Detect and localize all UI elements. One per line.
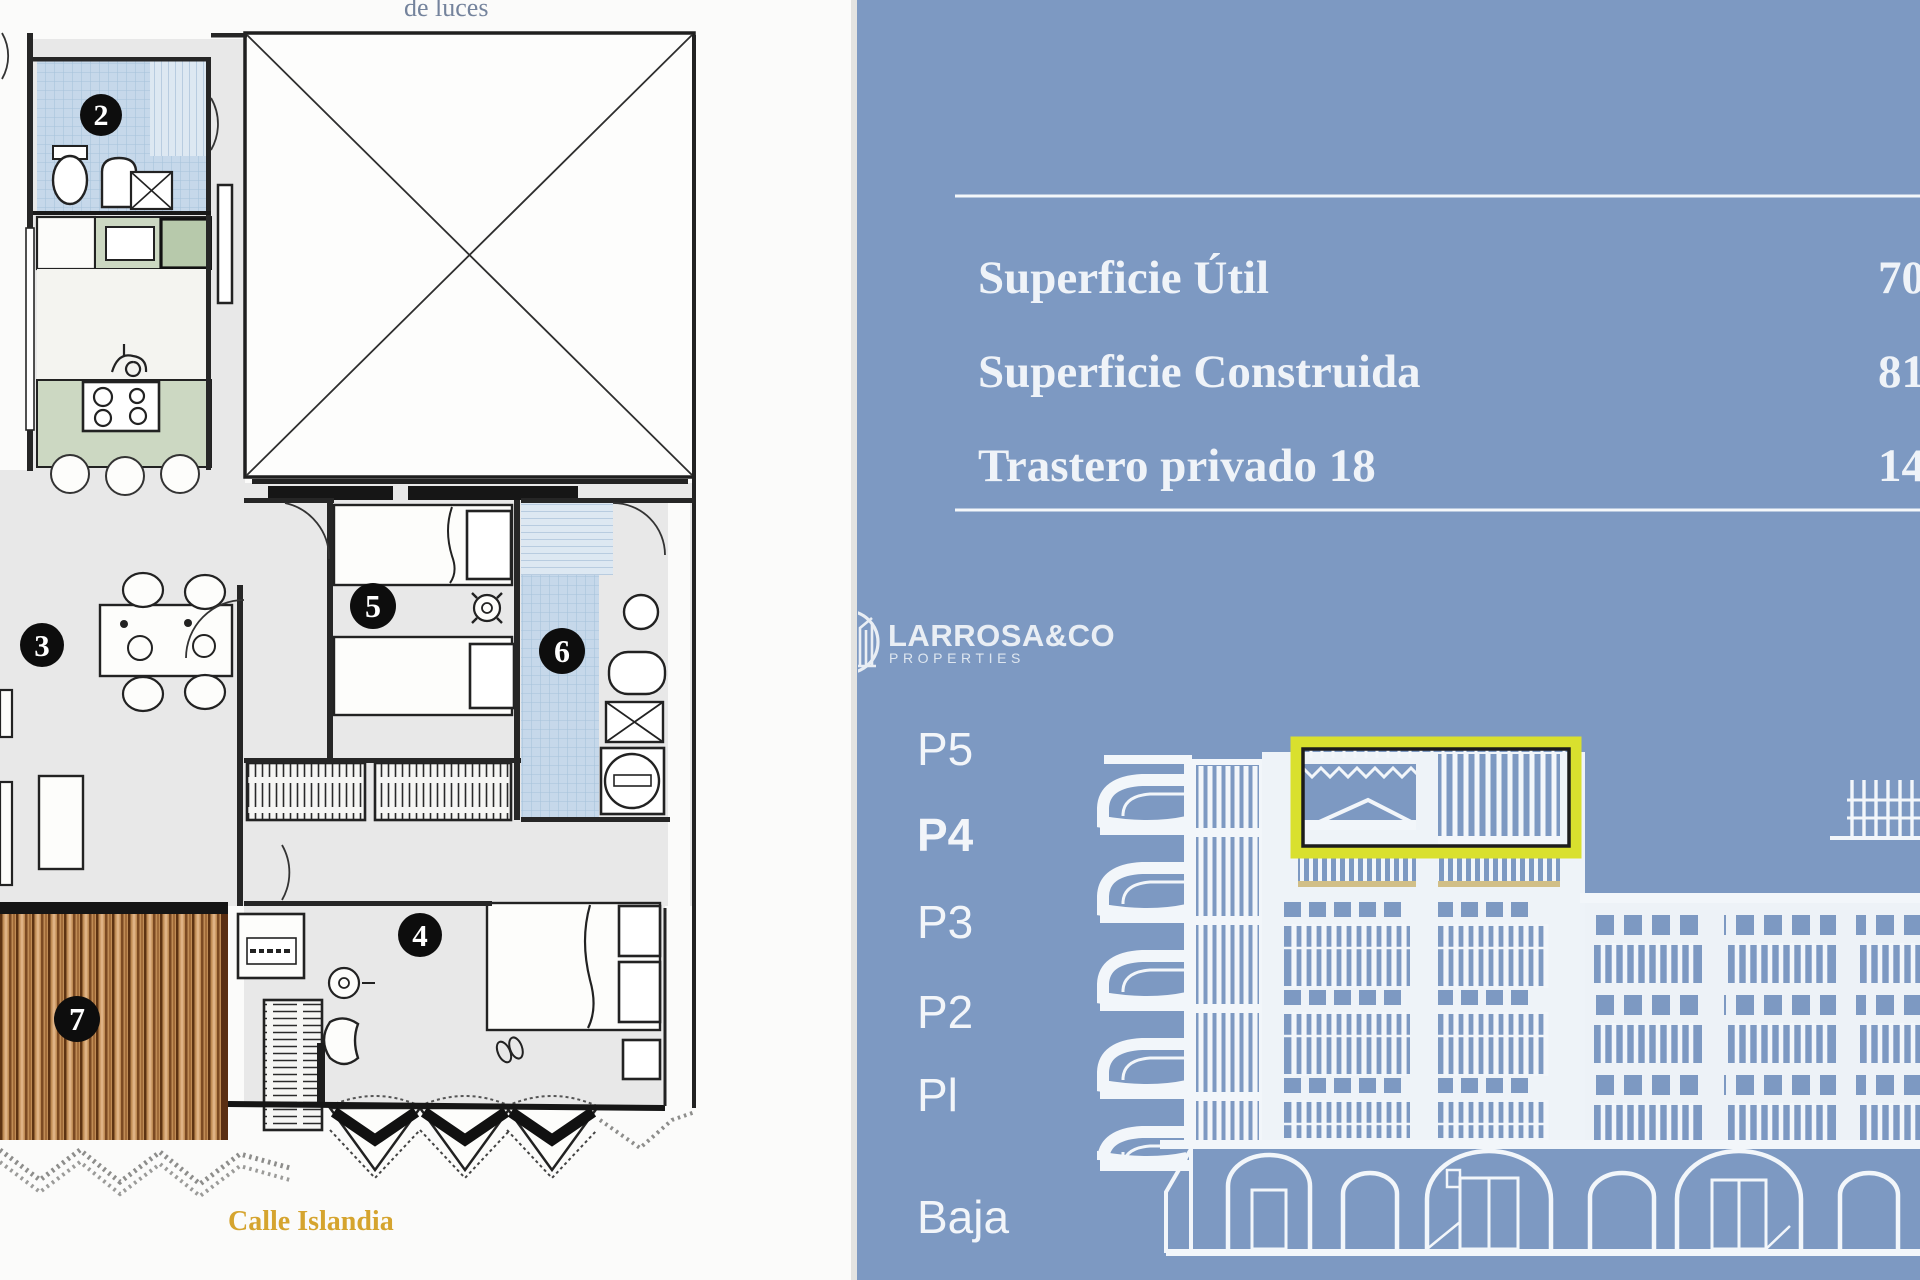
svg-text:7: 7 [69,1001,85,1037]
svg-text:2: 2 [94,99,109,132]
svg-text:P4: P4 [917,809,974,861]
svg-text:3: 3 [34,628,50,663]
svg-text:P2: P2 [917,986,973,1038]
svg-text:Superficie Útil: Superficie Útil [978,252,1269,304]
svg-text:P5: P5 [917,723,973,775]
svg-text:Calle Islandia: Calle Islandia [228,1206,394,1237]
svg-text:P3: P3 [917,896,973,948]
svg-text:70,: 70, [1878,252,1920,304]
svg-text:81,: 81, [1878,346,1920,398]
svg-text:5: 5 [365,588,381,624]
svg-text:Baja: Baja [917,1191,1009,1243]
svg-text:14,: 14, [1878,440,1920,492]
svg-text:Pl: Pl [917,1069,958,1121]
svg-text:LARROSA&CO: LARROSA&CO [888,618,1115,653]
svg-text:PROPERTIES: PROPERTIES [889,650,1025,666]
svg-text:de luces: de luces [404,0,488,22]
svg-text:4: 4 [412,918,428,953]
svg-text:Superficie Construida: Superficie Construida [978,346,1421,398]
svg-text:Trastero privado 18: Trastero privado 18 [978,440,1376,492]
svg-text:6: 6 [554,633,570,669]
